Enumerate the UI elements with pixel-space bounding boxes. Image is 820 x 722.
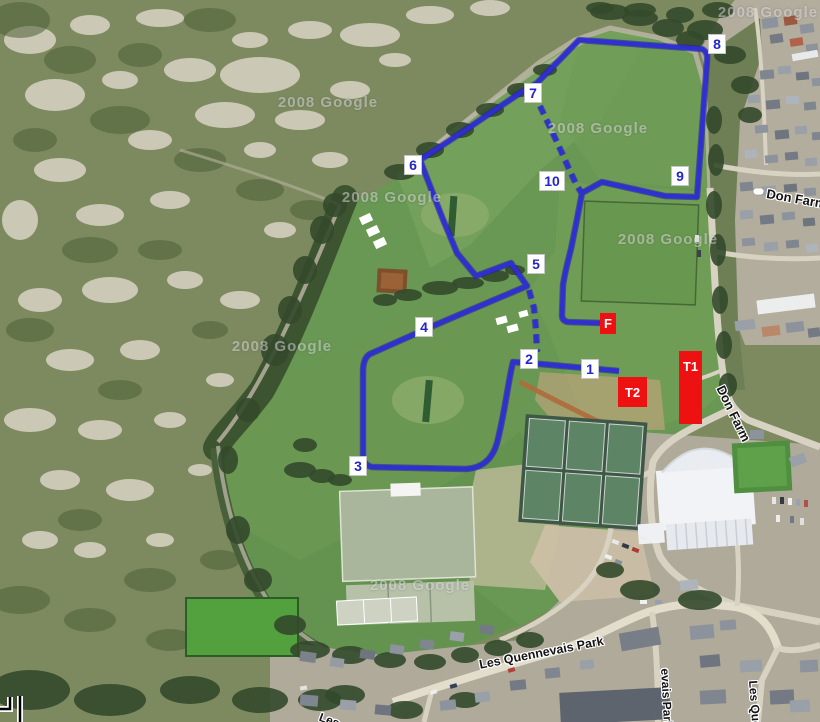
google-watermark: 2008 Google (278, 94, 378, 111)
google-watermark: 2008 Google (342, 189, 442, 206)
football-pitch (581, 201, 698, 305)
map-canvas[interactable]: 1 2 3 4 5 6 7 8 9 10 F T2 T1 Don Farm Do… (0, 0, 820, 722)
checkpoint-9: 9 (671, 166, 689, 186)
google-watermark: 2008 Google (548, 120, 648, 137)
finish-marker: F (600, 313, 616, 334)
checkpoint-10: 10 (539, 171, 565, 191)
checkpoint-1: 1 (581, 359, 599, 379)
tennis-courts (518, 414, 647, 530)
google-watermark: 2008 Google (618, 231, 718, 248)
checkpoint-5: 5 (527, 254, 545, 274)
petanque-courts (336, 597, 417, 625)
transition-1-marker: T1 (679, 351, 702, 424)
google-watermark: 2008 Google (232, 338, 332, 355)
google-watermark: 2008 Google (718, 4, 818, 21)
google-watermark: 2008 Google (370, 577, 470, 594)
checkpoint-3: 3 (349, 456, 367, 476)
checkpoint-7: 7 (524, 83, 542, 103)
checkpoint-4: 4 (415, 317, 433, 337)
checkpoint-2: 2 (520, 349, 538, 369)
transition-2-marker: T2 (618, 377, 647, 407)
checkpoint-6: 6 (404, 155, 422, 175)
checkpoint-8: 8 (708, 34, 726, 54)
road-label-dot (753, 188, 764, 195)
